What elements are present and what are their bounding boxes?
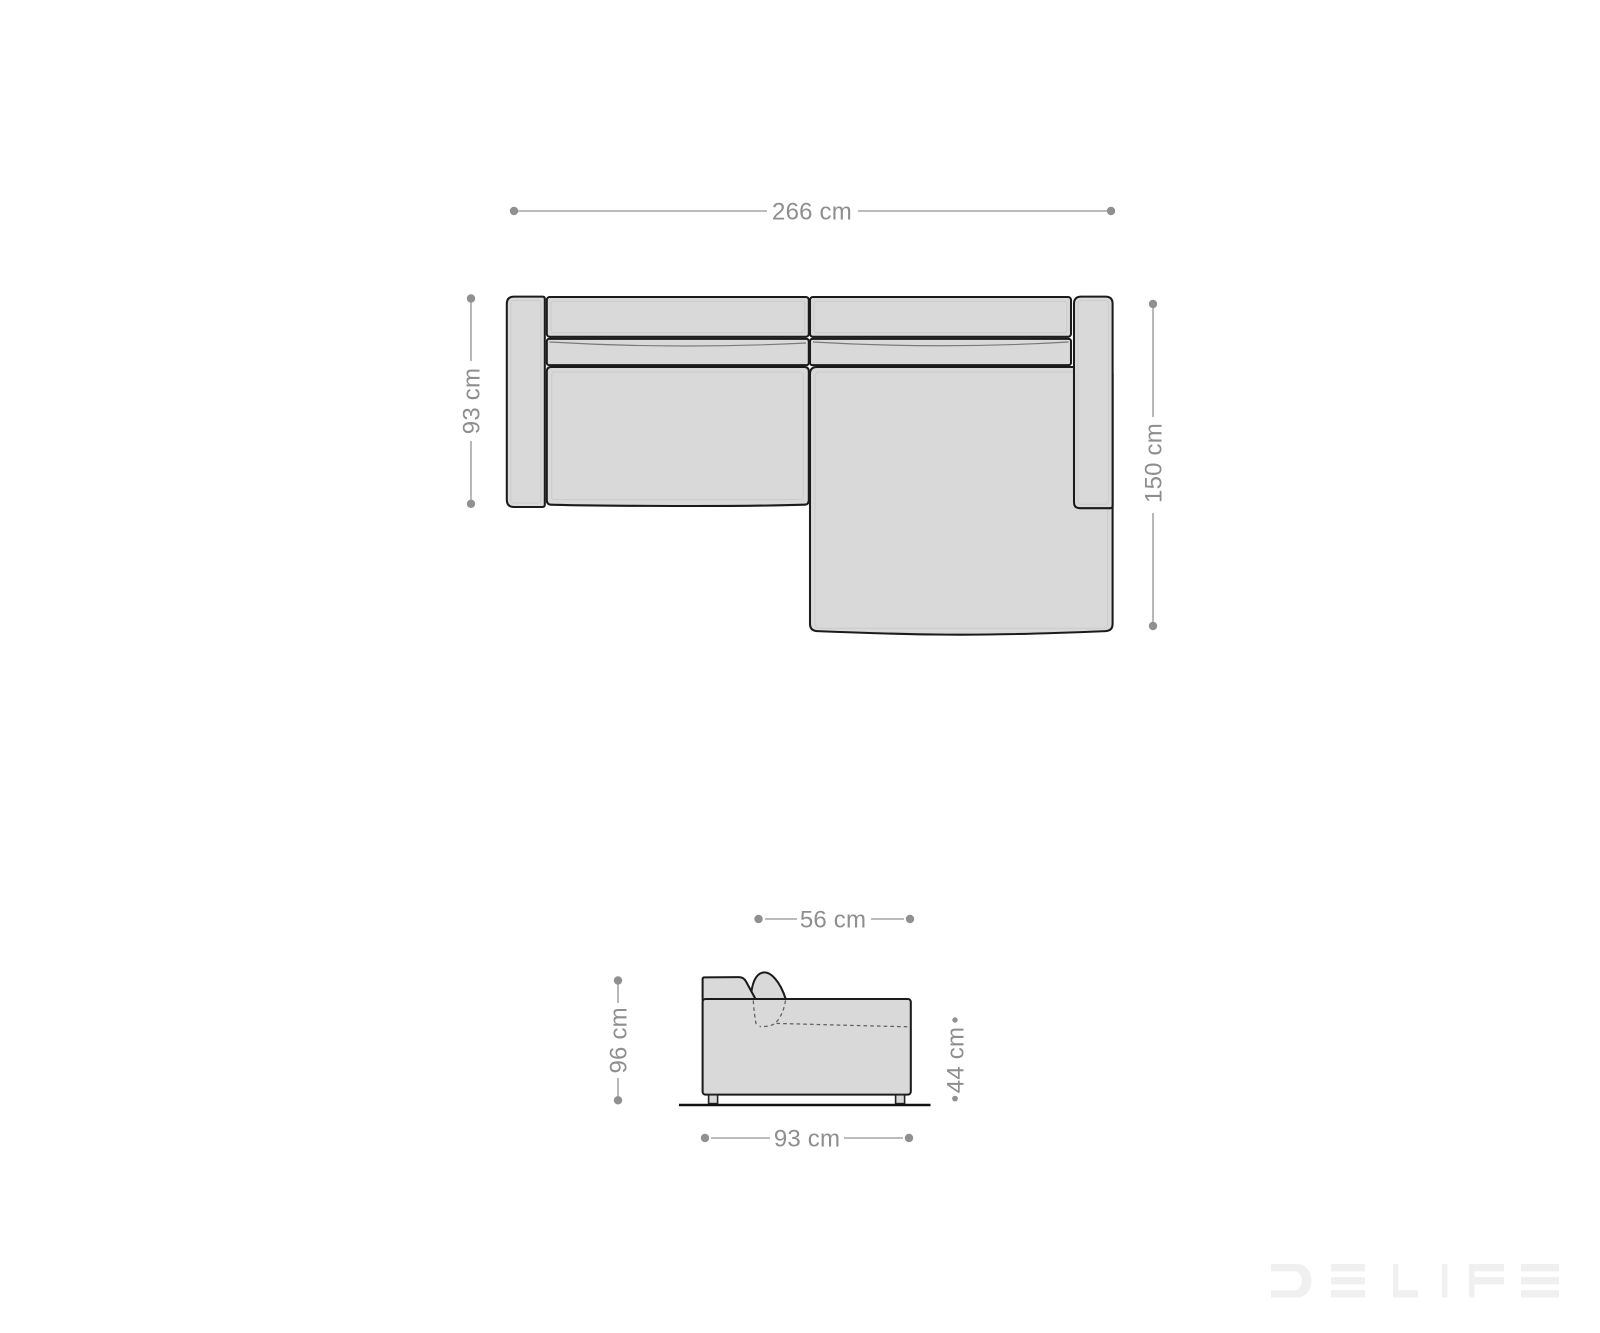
svg-text:266 cm: 266 cm xyxy=(772,199,852,226)
svg-text:150 cm: 150 cm xyxy=(1141,423,1168,503)
svg-text:93 cm: 93 cm xyxy=(459,368,486,434)
svg-text:56 cm: 56 cm xyxy=(800,907,866,934)
svg-text:93 cm: 93 cm xyxy=(774,1126,840,1153)
svg-text:96 cm: 96 cm xyxy=(606,1007,633,1073)
svg-text:44 cm: 44 cm xyxy=(943,1027,970,1093)
